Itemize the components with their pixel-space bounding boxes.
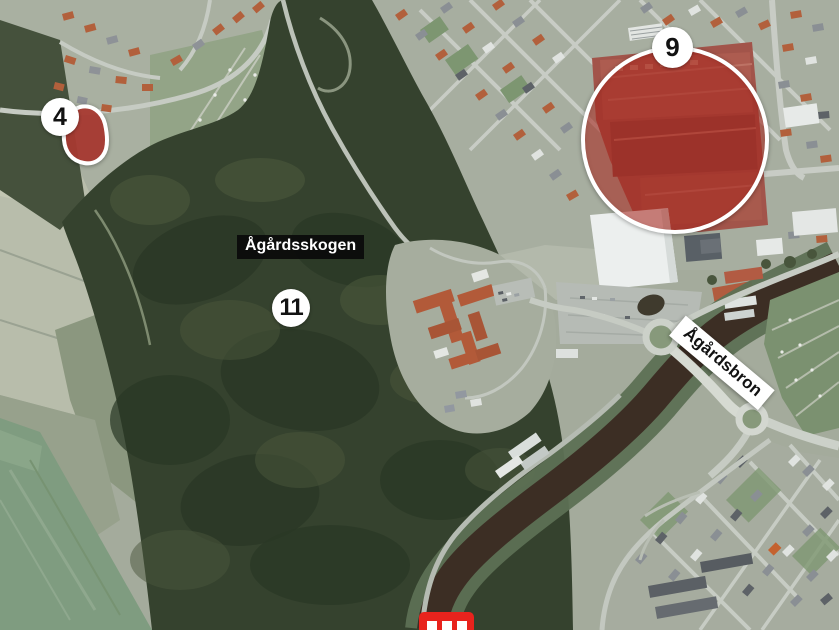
- logo-bar-icon: [457, 621, 467, 630]
- place-label-forest-text: Ågårdsskogen: [245, 237, 356, 254]
- place-label-forest: Ågårdsskogen: [237, 235, 364, 259]
- publisher-logo-partial: [419, 612, 474, 630]
- news-map-graphic: Ågårdsskogen Ågårdsbron 4 9 11: [0, 0, 839, 630]
- highlight-circle-9: [583, 48, 767, 232]
- marker-badge-4-number: 4: [53, 103, 67, 132]
- marker-badge-11: 11: [272, 289, 310, 327]
- marker-badge-9: 9: [652, 27, 693, 68]
- logo-bar-icon: [442, 621, 452, 630]
- logo-bar-icon: [427, 621, 437, 630]
- marker-badge-9-number: 9: [665, 32, 679, 63]
- marker-badge-11-number: 11: [279, 294, 302, 322]
- marker-badge-4: 4: [41, 98, 79, 136]
- highlight-layer: [0, 0, 839, 630]
